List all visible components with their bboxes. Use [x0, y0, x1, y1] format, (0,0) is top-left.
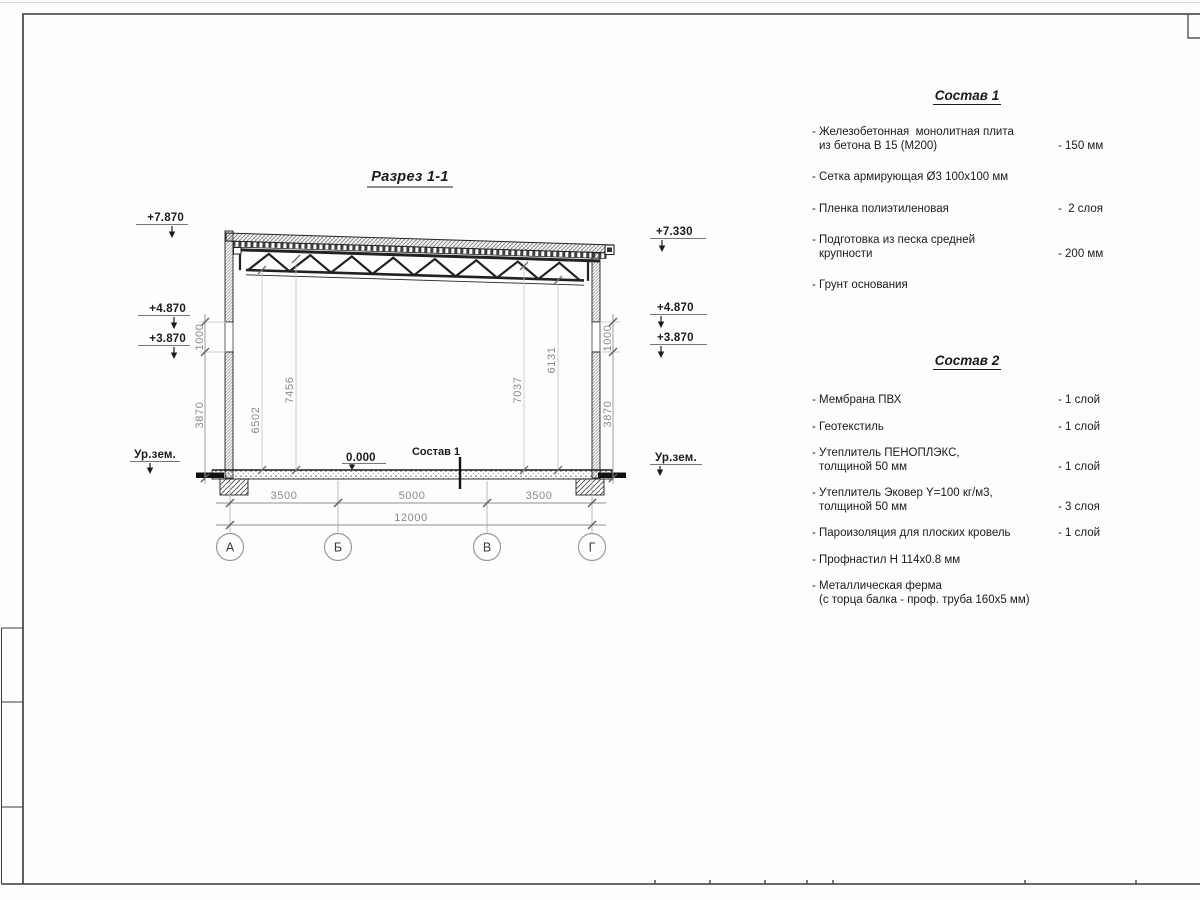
svg-text:Состав 1: Состав 1: [412, 446, 460, 458]
frame-corner-notch: [1188, 14, 1200, 38]
svg-text:+3.870: +3.870: [657, 332, 694, 344]
ground-bar-right: [598, 473, 626, 479]
item-value: - 150 мм: [1058, 140, 1122, 154]
composition-item: - Сетка армирующая Ø3 100х100 мм: [812, 171, 1122, 185]
axis-a: А: [226, 541, 235, 555]
left-wall: [225, 231, 233, 478]
drawing-sheet: Разрез 1-1: [0, 0, 1200, 900]
composition-item: - Подготовка из песка среднейкрупности -…: [812, 234, 1122, 261]
composition-1-items: - Железобетонная монолитная плитаиз бето…: [812, 126, 1122, 311]
dim-span-3: 3500: [526, 490, 553, 502]
right-dimension-chain: 1000 3870: [600, 314, 620, 484]
axis-g: Г: [589, 541, 596, 555]
ground-level-right: Ур.зем.: [650, 452, 702, 476]
interior-dimensions: 6502 7456 7037 6131: [250, 255, 562, 474]
dim-6502: 6502: [250, 407, 262, 434]
floor-composition-leader: Состав 1: [412, 446, 460, 489]
svg-text:0.000: 0.000: [346, 452, 376, 464]
ground-bar-left: [196, 473, 224, 479]
dim-7037: 7037: [512, 377, 524, 404]
left-dimension-chain: 1000 3870: [194, 314, 226, 484]
svg-text:+4.870: +4.870: [657, 302, 694, 314]
zero-level-mark: 0.000: [342, 452, 386, 470]
svg-text:Ур.зем.: Ур.зем.: [134, 449, 176, 461]
foundation-left: [220, 479, 248, 495]
truss-left-bearing: [234, 248, 242, 255]
composition-item: - Геотекстиль - 1 слой: [812, 421, 1122, 435]
elev-right-7330: +7.330: [650, 226, 706, 252]
axis-b: Б: [334, 541, 342, 555]
item-value: - 2 слоя: [1058, 203, 1122, 217]
dim-right-3870: 3870: [602, 401, 614, 428]
item-value: - 1 слой: [1058, 461, 1122, 475]
dim-left-1000: 1000: [194, 324, 206, 351]
composition-item: - Утеплитель ПЕНОПЛЭКС,толщиной 50 мм - …: [812, 447, 1122, 474]
svg-text:+4.870: +4.870: [149, 303, 186, 315]
axis-bubbles: А Б В Г: [217, 534, 606, 561]
right-wall: [592, 253, 600, 478]
composition-2-items: - Мембрана ПВХ - 1 слой - Геотекстиль - …: [812, 394, 1122, 620]
elev-left-4870: +4.870: [138, 303, 190, 329]
svg-text:+7.870: +7.870: [147, 212, 184, 224]
composition-item: - Утеплитель Эковер Y=100 кг/м3,толщиной…: [812, 487, 1122, 514]
dim-span-1: 3500: [271, 490, 298, 502]
item-value: - 1 слой: [1058, 527, 1122, 541]
elev-right-4870: +4.870: [650, 302, 707, 328]
svg-text:+7.330: +7.330: [656, 226, 693, 238]
item-value: - 3 слоя: [1058, 501, 1122, 515]
foundation-right: [576, 479, 604, 495]
composition-item: - Профнастил Н 114х0.8 мм: [812, 554, 1122, 568]
ground-level-left: Ур.зем.: [130, 449, 180, 474]
dim-7456: 7456: [284, 377, 296, 404]
composition-item: - Железобетонная монолитная плитаиз бето…: [812, 126, 1122, 153]
composition-item: - Пленка полиэтиленовая - 2 слоя: [812, 203, 1122, 217]
dim-span-2: 5000: [399, 490, 426, 502]
axis-v: В: [483, 541, 491, 555]
composition-2-title: Состав 2: [812, 353, 1122, 368]
composition-item: - Грунт основания: [812, 279, 1122, 293]
svg-text:+3.870: +3.870: [149, 333, 186, 345]
dim-total: 12000: [394, 512, 428, 524]
item-value: - 1 слой: [1058, 394, 1122, 408]
composition-item: - Пароизоляция для плоских кровель - 1 с…: [812, 527, 1122, 541]
section-title: Разрез 1-1: [371, 169, 448, 185]
svg-text:Ур.зем.: Ур.зем.: [655, 452, 697, 464]
elev-right-3870: +3.870: [650, 332, 707, 358]
dim-6131: 6131: [546, 347, 558, 374]
dim-left-3870: 3870: [194, 402, 206, 429]
elev-left-3870: +3.870: [138, 333, 190, 359]
item-value: - 1 слой: [1058, 421, 1122, 435]
dim-right-1000: 1000: [602, 325, 614, 352]
bottom-dimensions: 3500 5000 3500 12000 А Б В Г: [216, 481, 606, 561]
floor-slab: [212, 470, 612, 479]
composition-1-title: Состав 1: [812, 88, 1122, 103]
elev-left-7870: +7.870: [136, 212, 188, 238]
composition-item: - Мембрана ПВХ - 1 слой: [812, 394, 1122, 408]
composition-item: - Металлическая ферма(с торца балка - пр…: [812, 580, 1122, 607]
item-value: - 200 мм: [1058, 248, 1122, 262]
